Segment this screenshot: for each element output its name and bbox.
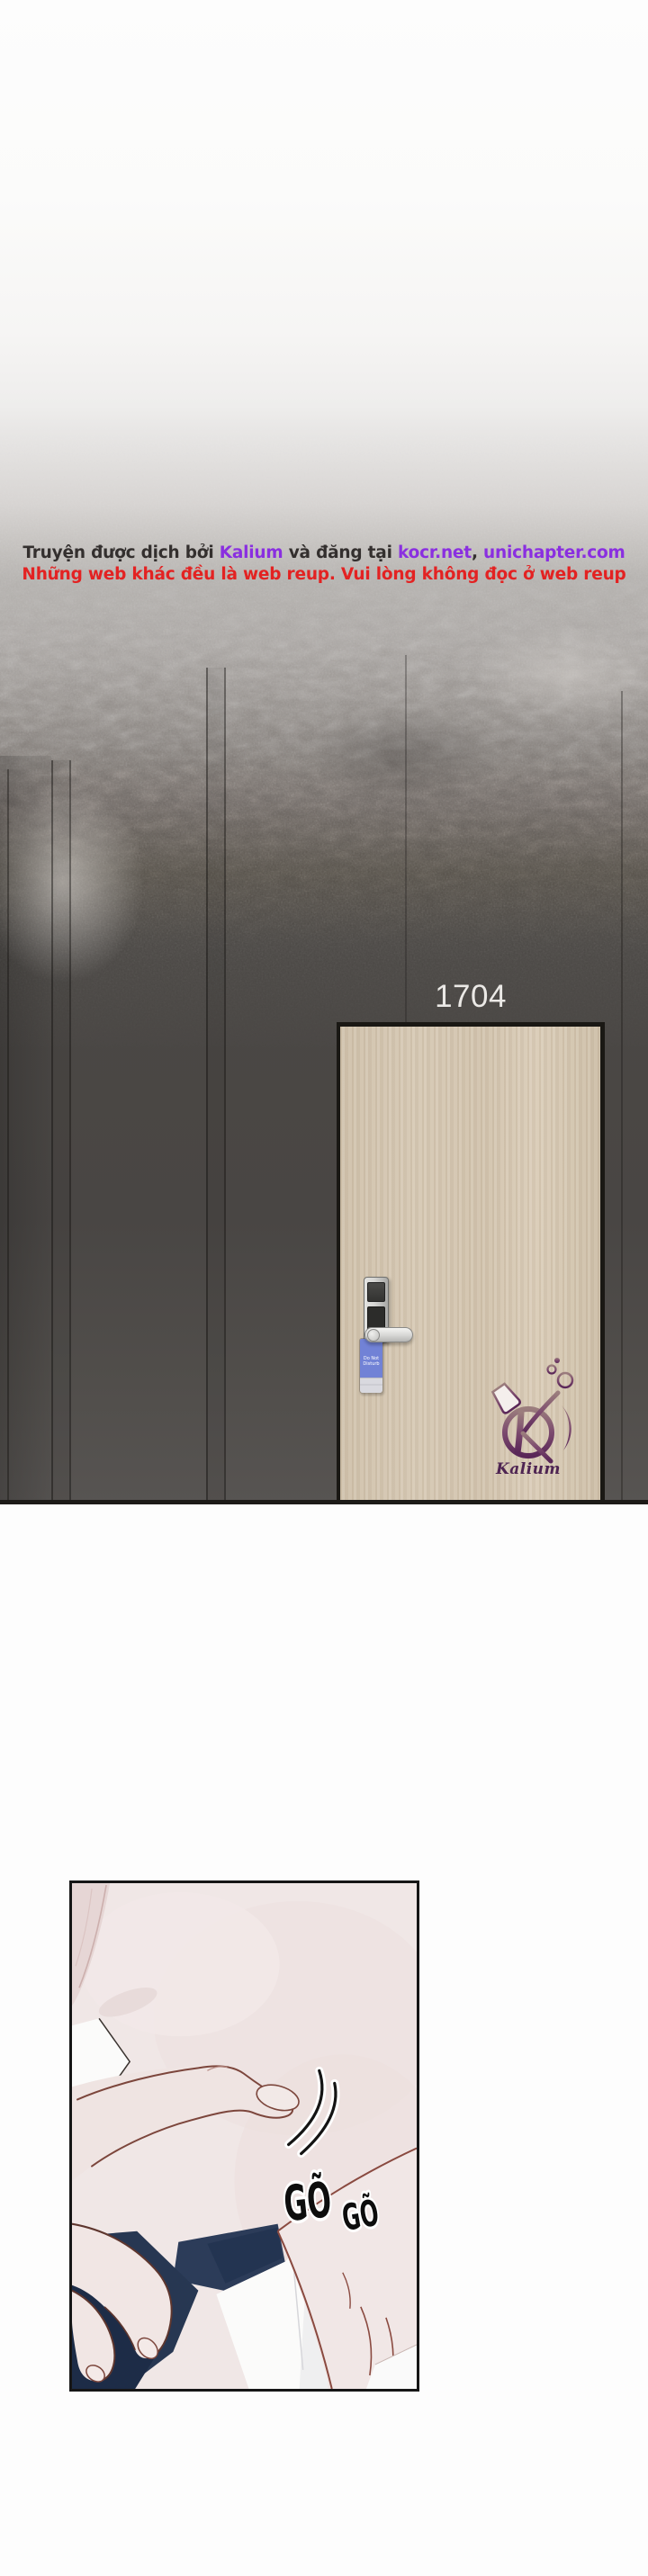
credits-text: Truyện được dịch bởi: [22, 543, 219, 562]
room-number: 1704: [337, 979, 605, 1015]
kalium-script-label: Kalium: [495, 1460, 561, 1478]
credits-line-2: Những web khác đều là web reup. Vui lòng…: [0, 564, 648, 586]
wall-seam: [621, 691, 623, 1500]
wall-groove: [206, 668, 226, 1500]
hallway-scene: Truyện được dịch bởi Kalium và đăng tại …: [0, 0, 648, 1504]
site-name-kocr: kocr.net: [398, 543, 472, 562]
credits-line-1: Truyện được dịch bởi Kalium và đăng tại …: [0, 543, 648, 564]
credits-text: và đăng tại: [283, 543, 398, 562]
knock-artwork: GÕ GÕ: [72, 1883, 417, 2389]
translator-name: Kalium: [220, 543, 283, 562]
site-name-unichapter: unichapter.com: [483, 543, 625, 562]
bubbles-icon: [548, 1358, 573, 1387]
tag-text-line2: Disturb: [360, 1361, 382, 1367]
do-not-disturb-tag: Do Not Disturb: [359, 1338, 383, 1394]
translator-credits: Truyện được dịch bởi Kalium và đăng tại …: [0, 543, 648, 586]
sfx-knock-large: GÕ: [281, 2170, 334, 2233]
floor-line: [0, 1500, 648, 1504]
tag-blue-section: Do Not Disturb: [360, 1339, 382, 1378]
door-lock-keypad: [367, 1282, 385, 1302]
credits-separator: ,: [472, 543, 483, 562]
comic-page: Truyện được dịch bởi Kalium và đăng tại …: [0, 0, 648, 2576]
tag-white-section: [360, 1378, 382, 1394]
sfx-knock-small: GÕ: [338, 2190, 382, 2239]
door-handle-pivot: [367, 1329, 380, 1342]
kalium-logo: Kalium: [486, 1342, 585, 1482]
wall-seam: [405, 655, 407, 1028]
knock-panel: GÕ GÕ: [69, 1880, 419, 2392]
wall-groove: [51, 760, 71, 1500]
wall-seam: [7, 769, 9, 1500]
